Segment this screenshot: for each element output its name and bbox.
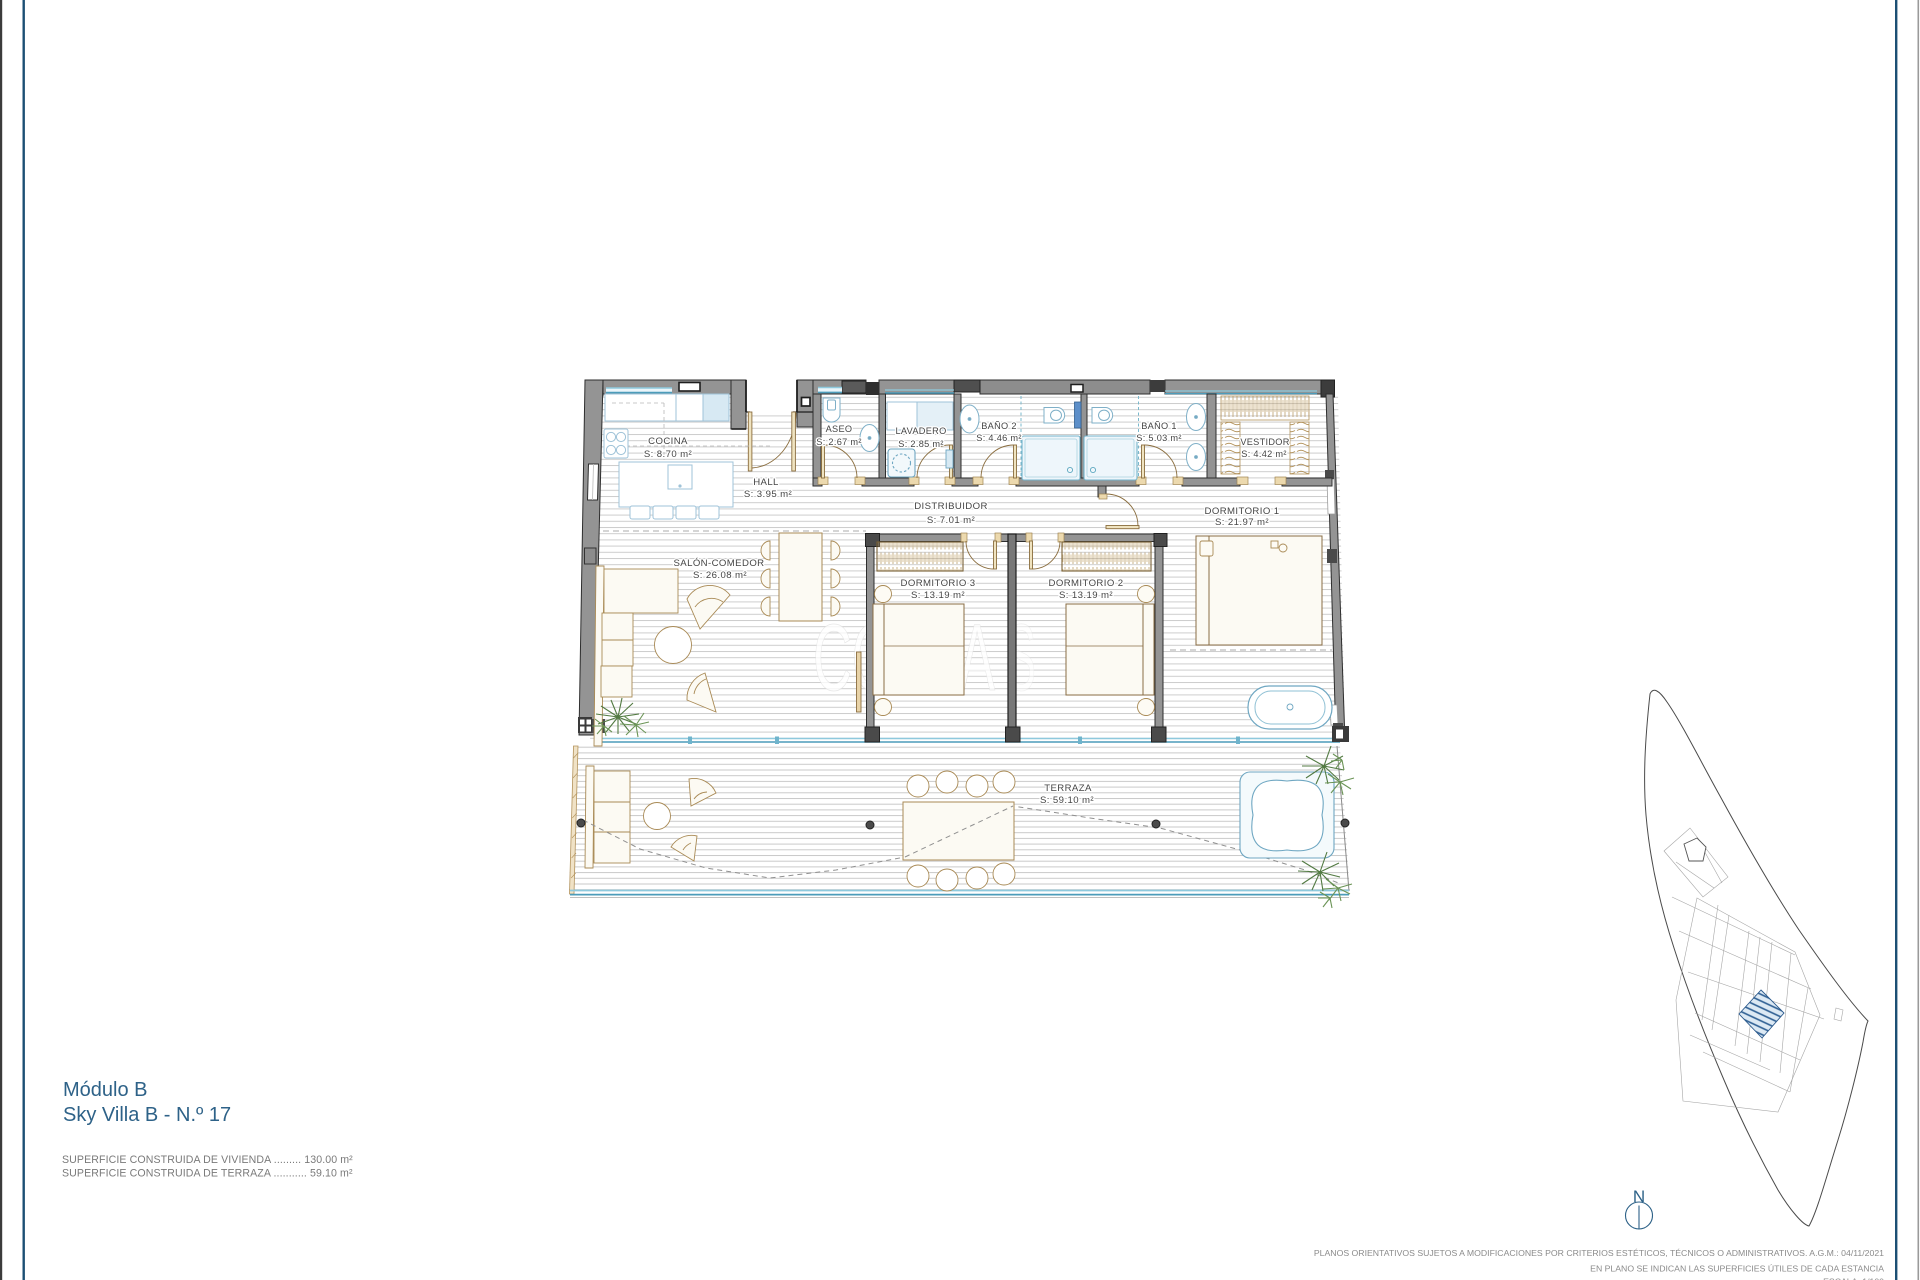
svg-text:S: 2.85 m²: S: 2.85 m² xyxy=(898,439,943,449)
svg-text:S: 4.42 m²: S: 4.42 m² xyxy=(1241,449,1286,459)
svg-text:SUPERFICIE CONSTRUIDA DE TERRA: SUPERFICIE CONSTRUIDA DE TERRAZA .......… xyxy=(62,1168,353,1180)
svg-text:S: 13.19 m²: S: 13.19 m² xyxy=(911,590,965,601)
svg-text:DORMITORIO 1: DORMITORIO 1 xyxy=(1205,506,1280,517)
svg-text:S: 7.01 m²: S: 7.01 m² xyxy=(927,515,976,526)
svg-text:S: 2.67 m²: S: 2.67 m² xyxy=(816,437,861,447)
svg-text:Módulo B: Módulo B xyxy=(63,1079,148,1101)
svg-text:Sky Villa B - N.º 17: Sky Villa B - N.º 17 xyxy=(63,1104,231,1126)
svg-text:LAVADERO: LAVADERO xyxy=(895,426,946,436)
svg-text:S: 5.03 m²: S: 5.03 m² xyxy=(1136,433,1181,443)
svg-text:HALL: HALL xyxy=(753,477,779,488)
svg-text:ASEO: ASEO xyxy=(826,424,853,434)
svg-text:TERRAZA: TERRAZA xyxy=(1044,783,1092,794)
svg-text:S: 26.08 m²: S: 26.08 m² xyxy=(693,570,747,581)
svg-text:EN PLANO SE INDICAN LAS SUPERF: EN PLANO SE INDICAN LAS SUPERFICIES ÚTIL… xyxy=(1590,1264,1884,1274)
svg-text:S: 8.70 m²: S: 8.70 m² xyxy=(644,449,693,460)
svg-text:S: 21.97 m²: S: 21.97 m² xyxy=(1215,517,1269,528)
svg-text:S: 13.19 m²: S: 13.19 m² xyxy=(1059,590,1113,601)
svg-text:DISTRIBUIDOR: DISTRIBUIDOR xyxy=(914,501,988,512)
svg-text:COCINA: COCINA xyxy=(648,436,688,447)
svg-text:S: 3.95 m²: S: 3.95 m² xyxy=(744,489,793,500)
svg-text:ESCALA: 1/100: ESCALA: 1/100 xyxy=(1823,1277,1884,1280)
svg-text:DORMITORIO 2: DORMITORIO 2 xyxy=(1049,578,1124,589)
svg-text:SALÓN-COMEDOR: SALÓN-COMEDOR xyxy=(673,558,764,569)
svg-text:S: 4.46 m²: S: 4.46 m² xyxy=(976,433,1021,443)
svg-text:S: 59.10 m²: S: 59.10 m² xyxy=(1040,795,1094,806)
svg-text:BAÑO 2: BAÑO 2 xyxy=(981,421,1017,431)
svg-text:PLANOS ORIENTATIVOS SUJETOS A: PLANOS ORIENTATIVOS SUJETOS A MODIFICACI… xyxy=(1314,1248,1884,1258)
svg-text:SUPERFICIE CONSTRUIDA DE VIVIE: SUPERFICIE CONSTRUIDA DE VIVIENDA ......… xyxy=(62,1154,353,1166)
svg-text:BAÑO 1: BAÑO 1 xyxy=(1141,421,1177,431)
svg-text:VESTIDOR: VESTIDOR xyxy=(1240,437,1289,447)
svg-text:DORMITORIO 3: DORMITORIO 3 xyxy=(901,578,976,589)
